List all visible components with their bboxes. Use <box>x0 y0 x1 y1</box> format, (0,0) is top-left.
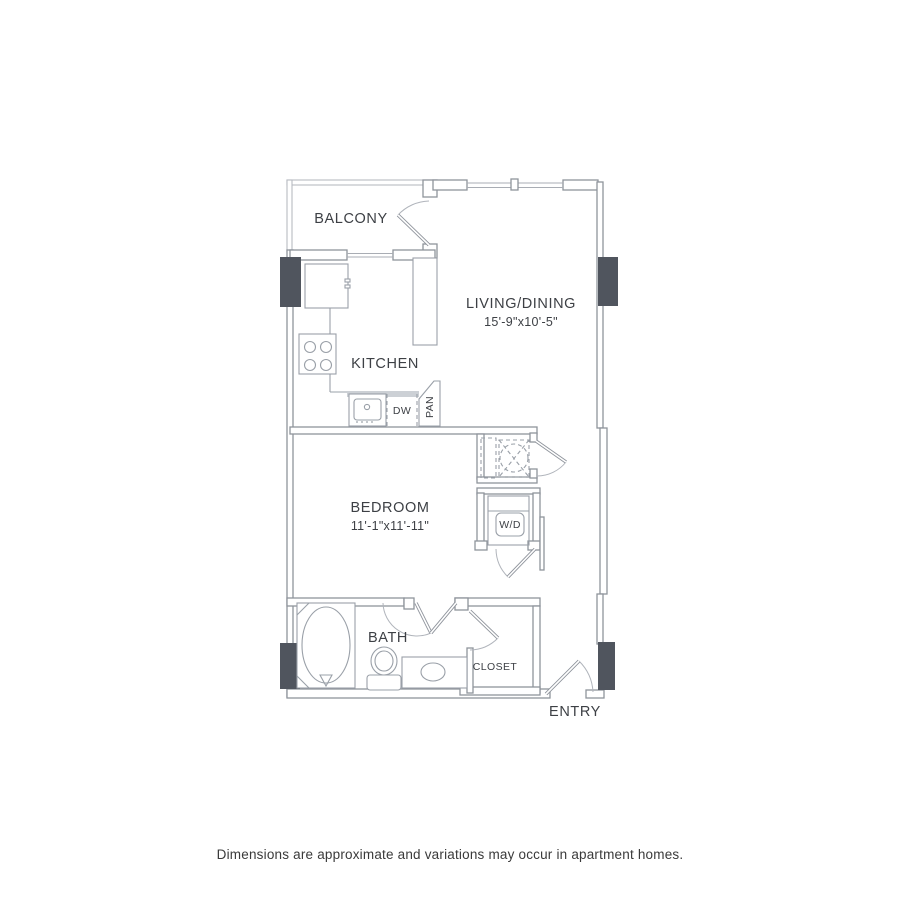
refrigerator <box>305 264 348 308</box>
bedroom-dimensions: 11'-1"x11'-11" <box>351 519 429 533</box>
vanity <box>402 657 467 688</box>
entry-door-swing <box>579 661 593 692</box>
closet-label: CLOSET <box>473 661 518 673</box>
structural-column <box>598 642 615 690</box>
closet-door <box>470 611 498 638</box>
structural-column <box>280 257 301 307</box>
toilet-bowl-inner <box>375 651 393 671</box>
closet-door-swing <box>470 638 498 650</box>
entry-door <box>546 661 579 694</box>
utility-door-post-top <box>530 433 537 442</box>
kitchen-label: KITCHEN <box>351 356 419 372</box>
sink-detail-dot <box>371 421 373 423</box>
wd-door-post-left <box>475 541 487 550</box>
sink-detail-dot <box>366 421 368 423</box>
wd-top-wall <box>477 488 540 494</box>
bedroom-label: BEDROOM <box>350 500 429 516</box>
bath-label: BATH <box>368 630 408 646</box>
right-wall-middle <box>600 428 607 594</box>
pantry-label: PAN <box>424 396 436 418</box>
toilet-tank <box>367 675 401 690</box>
dishwasher-label: DW <box>393 405 411 417</box>
floor-plan-svg: BALCONY LIVING/DINING 15'-9"x10'-5" KITC… <box>0 0 900 900</box>
living-dining-dimensions: 15'-9"x10'-5" <box>484 315 558 329</box>
refrigerator-handle <box>345 285 350 288</box>
utility-door <box>536 441 566 462</box>
washer-dryer-label: W/D <box>499 519 521 531</box>
kitchen-fixtures <box>299 258 440 426</box>
right-wall-lower <box>597 594 603 644</box>
sink-detail-dot <box>356 421 358 423</box>
utility-door-post-bottom <box>530 469 537 478</box>
left-wall <box>287 250 293 697</box>
balcony-door-swing <box>398 201 429 215</box>
bath-fixtures <box>297 603 467 690</box>
living-top-wall-right <box>563 180 598 190</box>
disclaimer-text: Dimensions are approximate and variation… <box>0 847 900 862</box>
closet-right-wall <box>533 606 540 693</box>
entry-label: ENTRY <box>549 704 601 720</box>
refrigerator-handle <box>345 279 350 282</box>
balcony-label: BALCONY <box>314 211 388 227</box>
balcony-door <box>398 215 429 245</box>
utility-door-swing <box>537 462 566 476</box>
floor-plan-page: BALCONY LIVING/DINING 15'-9"x10'-5" KITC… <box>0 0 900 900</box>
wd-left-wall <box>477 493 484 543</box>
balcony-top-wall <box>287 180 433 185</box>
wd-door-swing <box>496 549 508 577</box>
corridor-stub-wall <box>540 517 544 570</box>
bath-door-post <box>404 598 414 609</box>
sink-detail-dot <box>361 421 363 423</box>
structural-column <box>598 257 618 306</box>
living-top-wall-left <box>433 180 467 190</box>
entry-threshold <box>586 690 604 698</box>
wd-door <box>508 549 535 577</box>
wd-right-wall <box>533 493 540 543</box>
living-dining-label: LIVING/DINING <box>466 296 576 312</box>
kitchen-island <box>413 258 437 345</box>
kitchen-bedroom-divider-wall <box>290 427 537 434</box>
balcony-left-wall <box>287 180 292 252</box>
bedroom-door <box>431 603 456 633</box>
bath-door <box>416 603 431 633</box>
living-window-mullion <box>511 179 518 190</box>
room-labels: BALCONY LIVING/DINING 15'-9"x10'-5" KITC… <box>314 211 601 720</box>
